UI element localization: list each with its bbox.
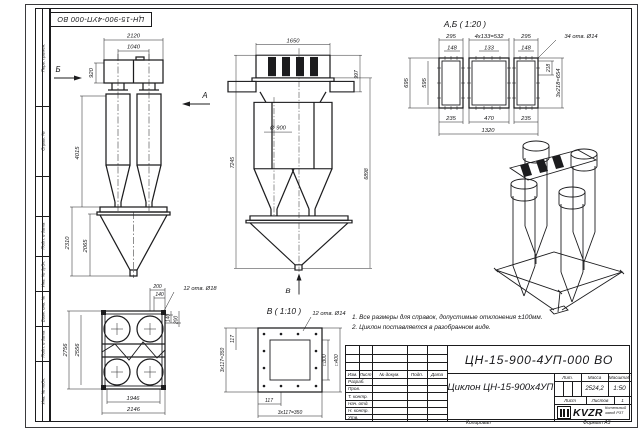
margin-label: Взам. инв. № <box>40 295 45 322</box>
section-arrow-v: В <box>285 274 301 295</box>
dim-d900: Ø 900 <box>269 126 286 132</box>
v-holes-label: 12 отв. Ø14 <box>312 311 345 317</box>
dim-235-left: 235 <box>445 116 456 122</box>
margin-label: Инв. № подл. <box>40 378 45 405</box>
dim-7245: 7245 <box>230 156 236 168</box>
ab-outline <box>439 58 538 108</box>
margin-label: Справ. № <box>40 131 45 151</box>
note-line-1: 1. Все размеры для справок, допустимые о… <box>352 313 584 323</box>
arrow-a-label: А <box>201 91 207 100</box>
dim-3x218: 3х218=654 <box>556 69 562 98</box>
dim-295-right: 295 <box>520 34 531 40</box>
dim-4x133: 4х133=532 <box>475 34 505 40</box>
row-razrab: Разраб. <box>346 378 374 385</box>
dim-133: 133 <box>484 46 494 52</box>
company-name-line2: завод РЗТ <box>605 410 631 415</box>
side-outline <box>228 55 354 270</box>
margin-section: Подп. и дата <box>36 326 49 362</box>
side-dimension-lines <box>234 43 372 268</box>
dim-2065: 2065 <box>83 239 89 254</box>
document-number: ЦН-15-900-4УП-000 ВО <box>447 346 631 373</box>
ab-view-title: А,Б ( 1:20 ) <box>443 19 486 29</box>
note-line-2: 2. Циклон поставляется в разобранном вид… <box>352 323 584 333</box>
margin-section: Инв. № дубл. <box>36 256 49 292</box>
ab-flange-ticks <box>437 56 540 110</box>
dim-117-bottom: 117 <box>265 398 273 404</box>
scale-label: Масштаб <box>608 373 631 381</box>
dim-920: 920 <box>89 67 95 77</box>
v-view: В ( 1:10 ) 3х117=350 117 12 отв. Ø14 □30… <box>218 298 353 420</box>
dim-218: 218 <box>546 64 552 74</box>
sheets-value: 1 <box>614 396 631 404</box>
plan-holes-label: 12 отв. Ø18 <box>183 286 217 292</box>
v-outline <box>258 328 322 392</box>
ab-holes-label: 34 отв. Ø14 <box>564 34 597 40</box>
dim-148-left: 148 <box>447 46 457 52</box>
sheets-label: Листов <box>586 396 614 404</box>
dim-595: 595 <box>422 77 428 87</box>
iso-hopper <box>494 252 624 314</box>
dim-695: 695 <box>404 77 410 87</box>
dim-200-right: 200 <box>174 316 180 326</box>
arrow-b-label: Б <box>55 65 60 74</box>
col-izm: Изм. <box>346 370 359 378</box>
dim-2310: 2310 <box>65 236 71 251</box>
dim-295-left: 295 <box>445 34 456 40</box>
dim-3x117-left: 3х117=350 <box>220 348 226 373</box>
arrow-v-label: В <box>285 286 290 294</box>
dim-2146: 2146 <box>126 407 141 413</box>
col-doc: № докум. <box>372 370 407 378</box>
scale-value: 1:50 <box>608 381 631 396</box>
dim-400: □400 <box>334 354 340 366</box>
col-list: Лист <box>359 370 372 378</box>
mass-value: 2524,2 <box>581 381 608 396</box>
dim-1650: 1650 <box>287 39 300 45</box>
dim-997: 997 <box>354 69 360 78</box>
isometric-view <box>484 122 634 320</box>
v-bolt-holes <box>263 333 318 388</box>
margin-label: Инв. № дубл. <box>40 260 45 286</box>
margin-section <box>36 176 49 217</box>
margin-section: Инв. № подл. <box>36 361 49 421</box>
v-dimension-lines <box>224 317 342 418</box>
dim-140-top: 140 <box>155 292 164 298</box>
company-name: Котельный завод РЗТ <box>605 405 631 415</box>
dim-200-top: 200 <box>152 284 162 290</box>
notes-block: 1. Все размеры для справок, допустимые о… <box>352 313 584 333</box>
dim-117-left: 117 <box>230 335 236 343</box>
margin-section: Перв. примен. <box>36 9 49 107</box>
section-arrow-a: А <box>182 91 210 107</box>
col-podp: Подп. <box>407 370 427 378</box>
margin-label: Подп. и дата <box>40 330 45 357</box>
dim-1946: 1946 <box>127 396 141 402</box>
dim-2556: 2556 <box>75 343 81 358</box>
front-view: 2120 1040 920 4015 2310 2065 Б А <box>52 26 232 278</box>
format-label: Формат А3 <box>583 420 610 426</box>
top-document-number: ЦН-15-900-4УП-000 ВО <box>57 15 144 24</box>
plan-view: 200 140 12 отв. Ø18 140 200 2756 2556 19… <box>55 282 230 420</box>
row-nkontr: Н. контр. <box>346 407 374 414</box>
sheet-label: Лист <box>554 396 586 404</box>
dim-6898: 6898 <box>364 168 370 179</box>
dim-2120: 2120 <box>126 34 141 40</box>
dim-3x117-bottom: 3х117=350 <box>278 410 303 416</box>
section-arrow-b: Б <box>54 65 82 81</box>
col-data: Дата <box>427 370 447 378</box>
margin-section: Подп. и дата <box>36 216 49 257</box>
title-block: Изм. Лист № докум. Подп. Дата Разраб. Пр… <box>345 345 630 420</box>
mass-label: Масса <box>581 373 608 381</box>
copy-label: Копировал <box>466 420 491 426</box>
dim-140-right: 140 <box>166 314 172 323</box>
row-nachotd: Нач. отд. <box>346 400 374 407</box>
front-centerlines <box>118 54 149 278</box>
plan-outline <box>101 310 166 390</box>
ab-view: А,Б ( 1:20 ) <box>398 10 633 140</box>
product-name: Циклон ЦН-15-900х4УП <box>447 373 554 421</box>
row-tkontr: Т. контр. <box>346 392 374 400</box>
drawing-sheet: Перв. примен. Справ. № Подп. и дата Инв.… <box>0 0 644 430</box>
dim-1040: 1040 <box>127 45 141 51</box>
row-prov: Пров. <box>346 385 374 392</box>
margin-label: Перв. примен. <box>40 43 45 72</box>
margin-section: Взам. инв. № <box>36 291 49 327</box>
margin-label: Подп. и дата <box>40 223 45 250</box>
margin-section: Справ. № <box>36 106 49 177</box>
company-logo-icon <box>557 406 571 419</box>
v-view-title: В ( 1:10 ) <box>267 306 302 316</box>
row-utv: Утв. <box>346 414 374 421</box>
dim-300: □300 <box>322 354 328 366</box>
top-document-stamp: ЦН-15-900-4УП-000 ВО <box>50 12 152 27</box>
company-logo-text: KVZR <box>573 404 605 421</box>
lit-label: Лит. <box>554 373 581 381</box>
plan-centers <box>111 323 156 378</box>
side-view: 1650 997 7245 6898 Ø 900 В <box>226 36 376 298</box>
dim-2756: 2756 <box>63 343 69 358</box>
dim-4015: 4015 <box>75 146 81 160</box>
margin-stamp-column: Перв. примен. Справ. № Подп. и дата Инв.… <box>35 8 50 422</box>
dim-148-right: 148 <box>521 46 531 52</box>
